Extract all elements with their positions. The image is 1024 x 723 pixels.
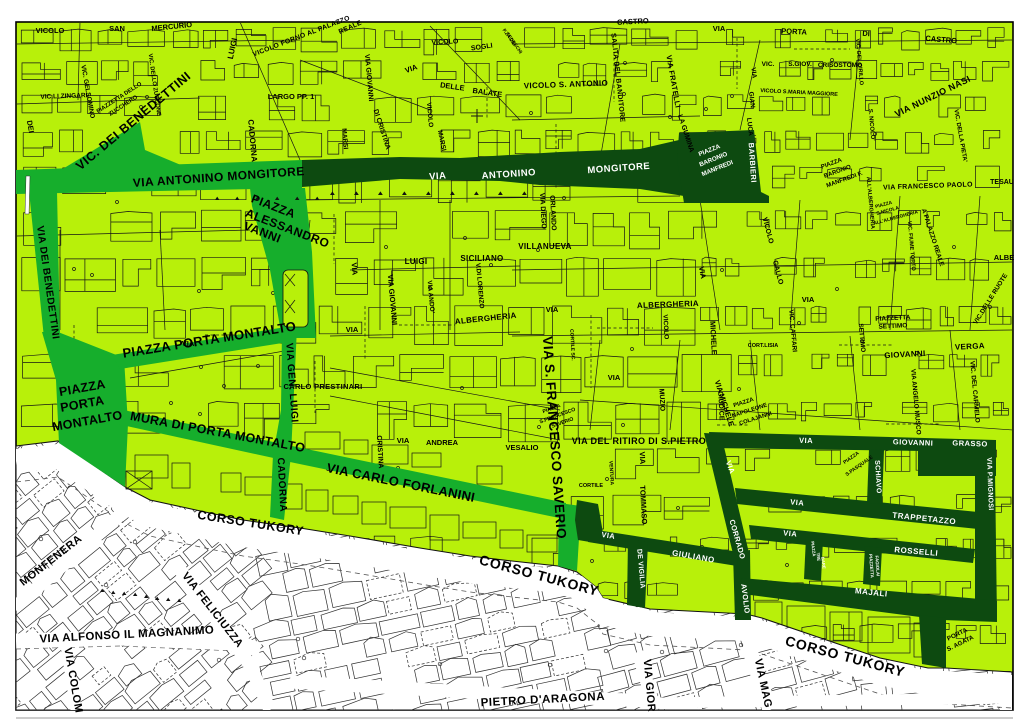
svg-text:ANDREA: ANDREA: [426, 438, 459, 447]
svg-text:LUIGI: LUIGI: [405, 257, 428, 266]
svg-text:VIA: VIA: [783, 528, 798, 538]
svg-text:VERGA: VERGA: [955, 341, 985, 352]
svg-text:VIA: VIA: [638, 451, 648, 465]
svg-text:VIA: VIA: [546, 305, 559, 314]
svg-text:VIA: VIA: [802, 295, 815, 304]
svg-text:CORTILE: CORTILE: [579, 483, 603, 489]
svg-text:VIA: VIA: [397, 436, 410, 445]
svg-text:GIOVANNI: GIOVANNI: [893, 437, 934, 447]
svg-text:VIA: VIA: [790, 497, 805, 507]
svg-text:MUZIO: MUZIO: [657, 388, 665, 411]
svg-text:CARLO PRESTINARI: CARLO PRESTINARI: [284, 382, 363, 391]
svg-text:VICOLO: VICOLO: [36, 26, 65, 35]
svg-text:DI: DI: [862, 29, 870, 38]
svg-text:SICILIANO: SICILIANO: [460, 254, 503, 263]
svg-text:VIA: VIA: [182, 339, 195, 348]
svg-text:PORTA: PORTA: [781, 26, 808, 36]
svg-text:CORT.LISIA: CORT.LISIA: [748, 343, 779, 349]
svg-text:VIA DEL RITIRO DI S.PIETRO: VIA DEL RITIRO DI S.PIETRO: [572, 436, 706, 446]
svg-text:VIA: VIA: [799, 436, 813, 445]
svg-text:VESALIO: VESALIO: [506, 443, 539, 452]
svg-text:CASTRO: CASTRO: [617, 16, 649, 27]
svg-text:ALBE: ALBE: [994, 253, 1014, 262]
svg-text:VENTURA: VENTURA: [607, 461, 614, 486]
svg-text:SAN: SAN: [109, 24, 125, 33]
svg-text:VICOLO: VICOLO: [431, 38, 459, 46]
svg-text:VIA: VIA: [608, 373, 621, 382]
svg-text:VIA: VIA: [713, 24, 726, 33]
svg-text:S.GIOV.: S.GIOV.: [788, 61, 812, 68]
svg-text:MICHELE: MICHELE: [708, 321, 719, 355]
svg-text:VIA: VIA: [346, 325, 359, 334]
svg-text:VICOLO: VICOLO: [661, 314, 669, 339]
svg-text:GRASSO: GRASSO: [952, 438, 988, 448]
svg-text:TESAU: TESAU: [990, 179, 1014, 186]
svg-text:VIA: VIA: [349, 262, 359, 276]
svg-text:VIA: VIA: [749, 67, 757, 79]
svg-text:LARGO PP. 1: LARGO PP. 1: [268, 92, 315, 101]
svg-text:VILLANUEVA: VILLANUEVA: [518, 242, 572, 251]
svg-text:VIC.: VIC.: [762, 61, 775, 68]
svg-text:CRISOSTOMO: CRISOSTOMO: [818, 62, 862, 69]
svg-text:VIA: VIA: [429, 170, 447, 182]
